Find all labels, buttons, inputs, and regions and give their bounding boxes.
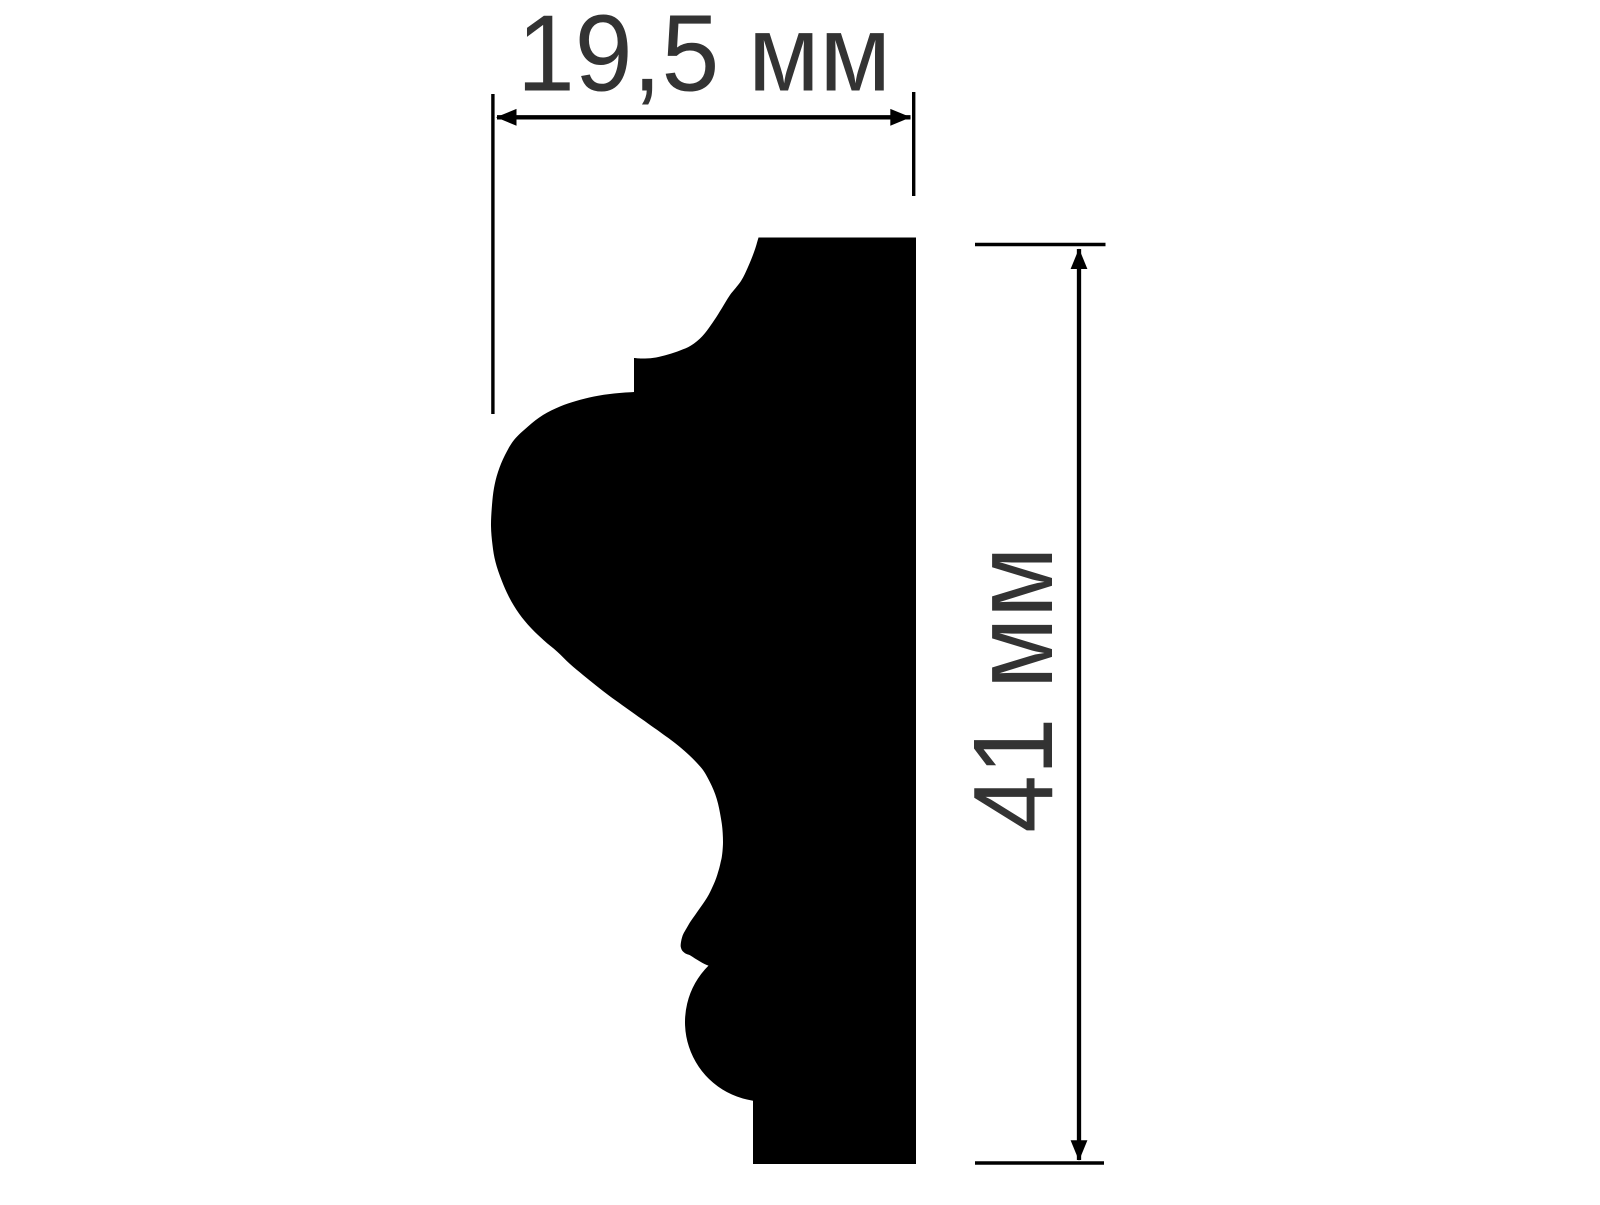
svg-text:41 мм: 41 мм [950,547,1076,833]
svg-text:19,5 мм: 19,5 мм [517,0,891,115]
